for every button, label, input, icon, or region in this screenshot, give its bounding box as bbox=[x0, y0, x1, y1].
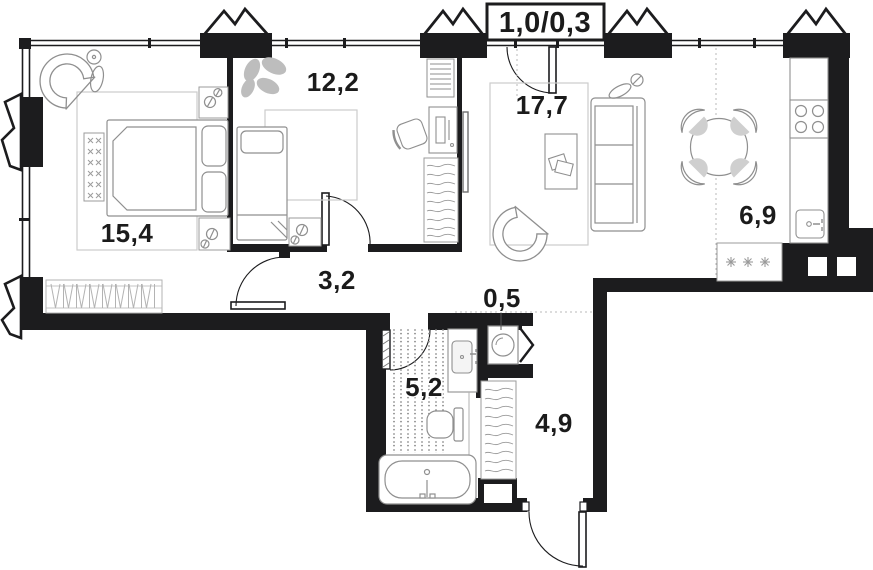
snowflake-icon bbox=[726, 257, 736, 267]
vanity-sink bbox=[448, 329, 477, 392]
shelf-unit bbox=[427, 59, 454, 97]
snowflake-icon bbox=[760, 257, 770, 267]
entry-area-label: 4,9 bbox=[535, 408, 573, 438]
snowflake-icon bbox=[743, 257, 753, 267]
facade-zigzag-icon bbox=[2, 94, 21, 338]
floor-plan-page: 1,0/0,3 bbox=[0, 0, 873, 570]
hall-closet bbox=[481, 381, 516, 479]
bedroom-area-label: 15,4 bbox=[101, 218, 154, 248]
laundry-area-label: 0,5 bbox=[483, 283, 521, 313]
tv-panel bbox=[463, 112, 468, 192]
room-kids: 12,2 bbox=[237, 54, 458, 246]
plant-icon bbox=[238, 54, 289, 100]
wall-niche bbox=[484, 257, 856, 503]
room-bathroom: 5,2 bbox=[379, 329, 477, 504]
room-bedroom: 15,4 bbox=[29, 43, 230, 313]
room-entry: 4,9 bbox=[481, 381, 573, 479]
room-living: 17,7 bbox=[463, 74, 645, 272]
floor-plan-svg: 1,0/0,3 bbox=[0, 0, 873, 570]
single-bed-symbol bbox=[237, 127, 287, 240]
wall-lamp-icon bbox=[607, 74, 643, 101]
wardrobe-hanging bbox=[46, 280, 162, 313]
kitchen-area-label: 6,9 bbox=[739, 200, 777, 230]
hallway-area-label: 3,2 bbox=[318, 265, 356, 295]
bathroom-area-label: 5,2 bbox=[405, 372, 443, 402]
desk bbox=[429, 107, 457, 153]
sofa-symbol bbox=[591, 98, 645, 231]
balcony-area-label: 1,0/0,3 bbox=[499, 7, 591, 39]
washing-machine-symbol bbox=[488, 326, 518, 364]
wardrobe-closet bbox=[424, 158, 458, 242]
armchair-symbol bbox=[482, 203, 552, 272]
bathtub-symbol bbox=[379, 455, 476, 504]
living-room-area-label: 17,7 bbox=[516, 90, 569, 120]
door-jamb bbox=[522, 502, 587, 511]
kids-room-area-label: 12,2 bbox=[307, 67, 360, 97]
desk-chair bbox=[391, 117, 429, 152]
coffee-table bbox=[545, 134, 577, 189]
double-bed-symbol bbox=[107, 120, 228, 216]
zone-boundary bbox=[455, 48, 716, 312]
toilet-symbol bbox=[427, 408, 463, 441]
bedside-bench bbox=[84, 133, 104, 201]
fridge-symbol bbox=[717, 243, 782, 281]
kitchen-sink-symbol bbox=[796, 210, 824, 238]
